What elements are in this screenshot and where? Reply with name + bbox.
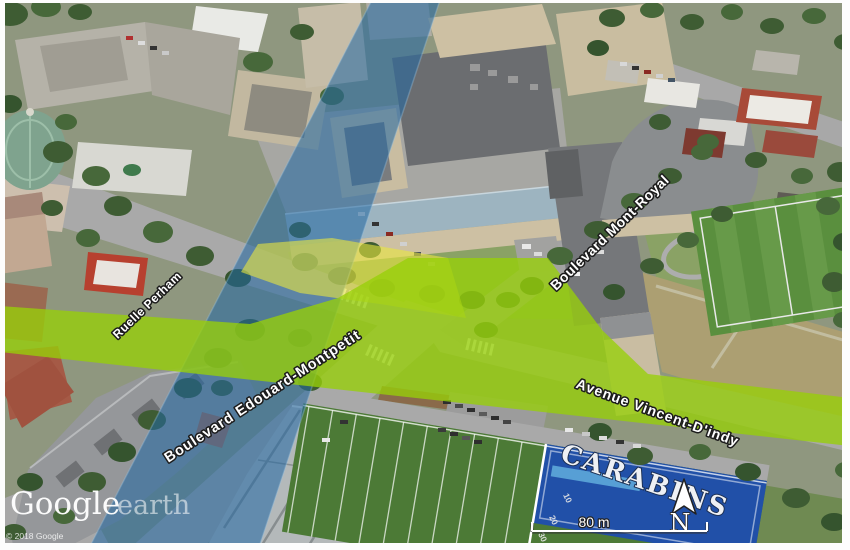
scale-label: 80 m [578, 514, 609, 530]
google-earth-window: CARABINS 10 20 30 [0, 0, 850, 550]
copyright-text: © 2018 Google [6, 531, 64, 541]
earth-viewport[interactable]: CARABINS 10 20 30 [0, 0, 850, 550]
logo-google: Google [10, 486, 120, 522]
google-earth-logo: Google earth [10, 486, 190, 522]
logo-earth: earth [117, 490, 190, 521]
